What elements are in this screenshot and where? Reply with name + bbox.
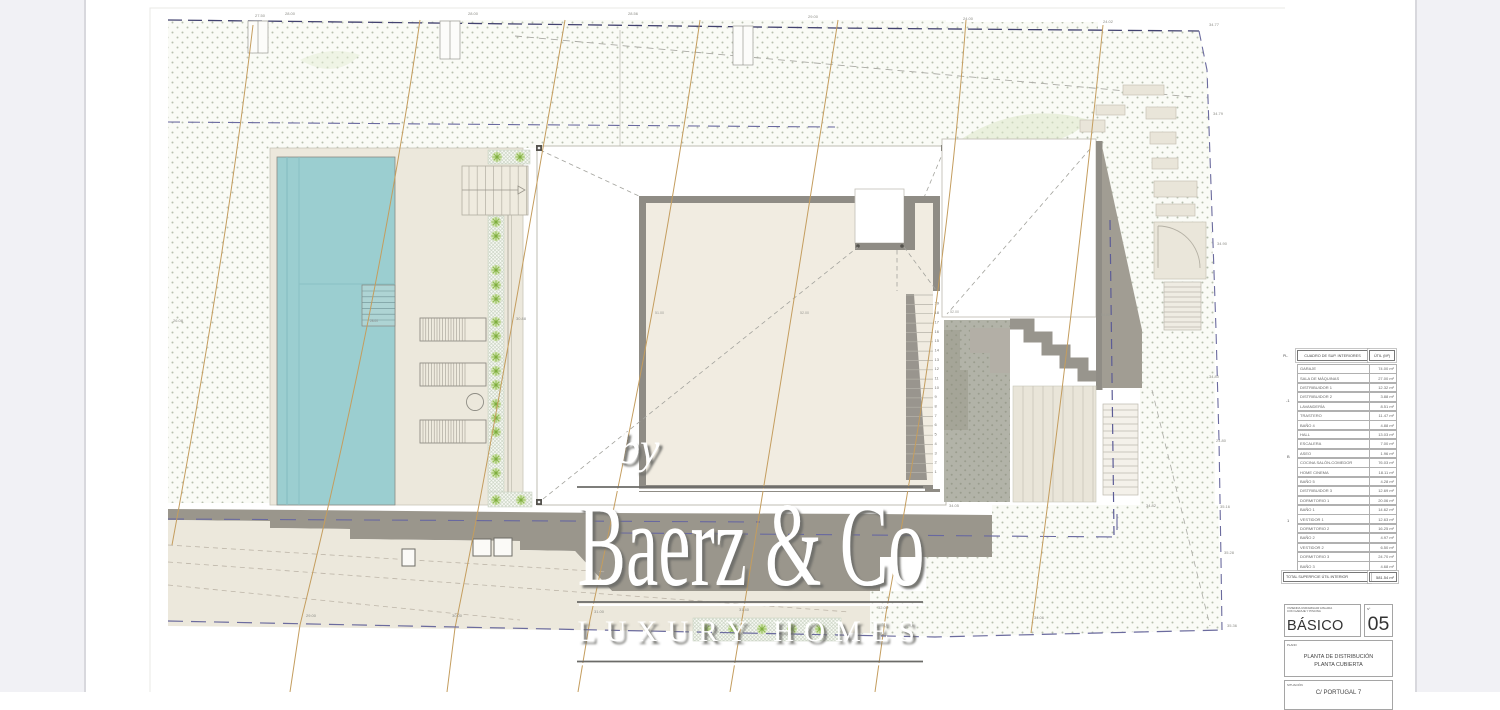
svg-text:by: by: [618, 424, 660, 473]
svg-text:LUXURY HOMES: LUXURY HOMES: [578, 615, 925, 648]
svg-text:Baerz & Co: Baerz & Co: [578, 478, 925, 611]
